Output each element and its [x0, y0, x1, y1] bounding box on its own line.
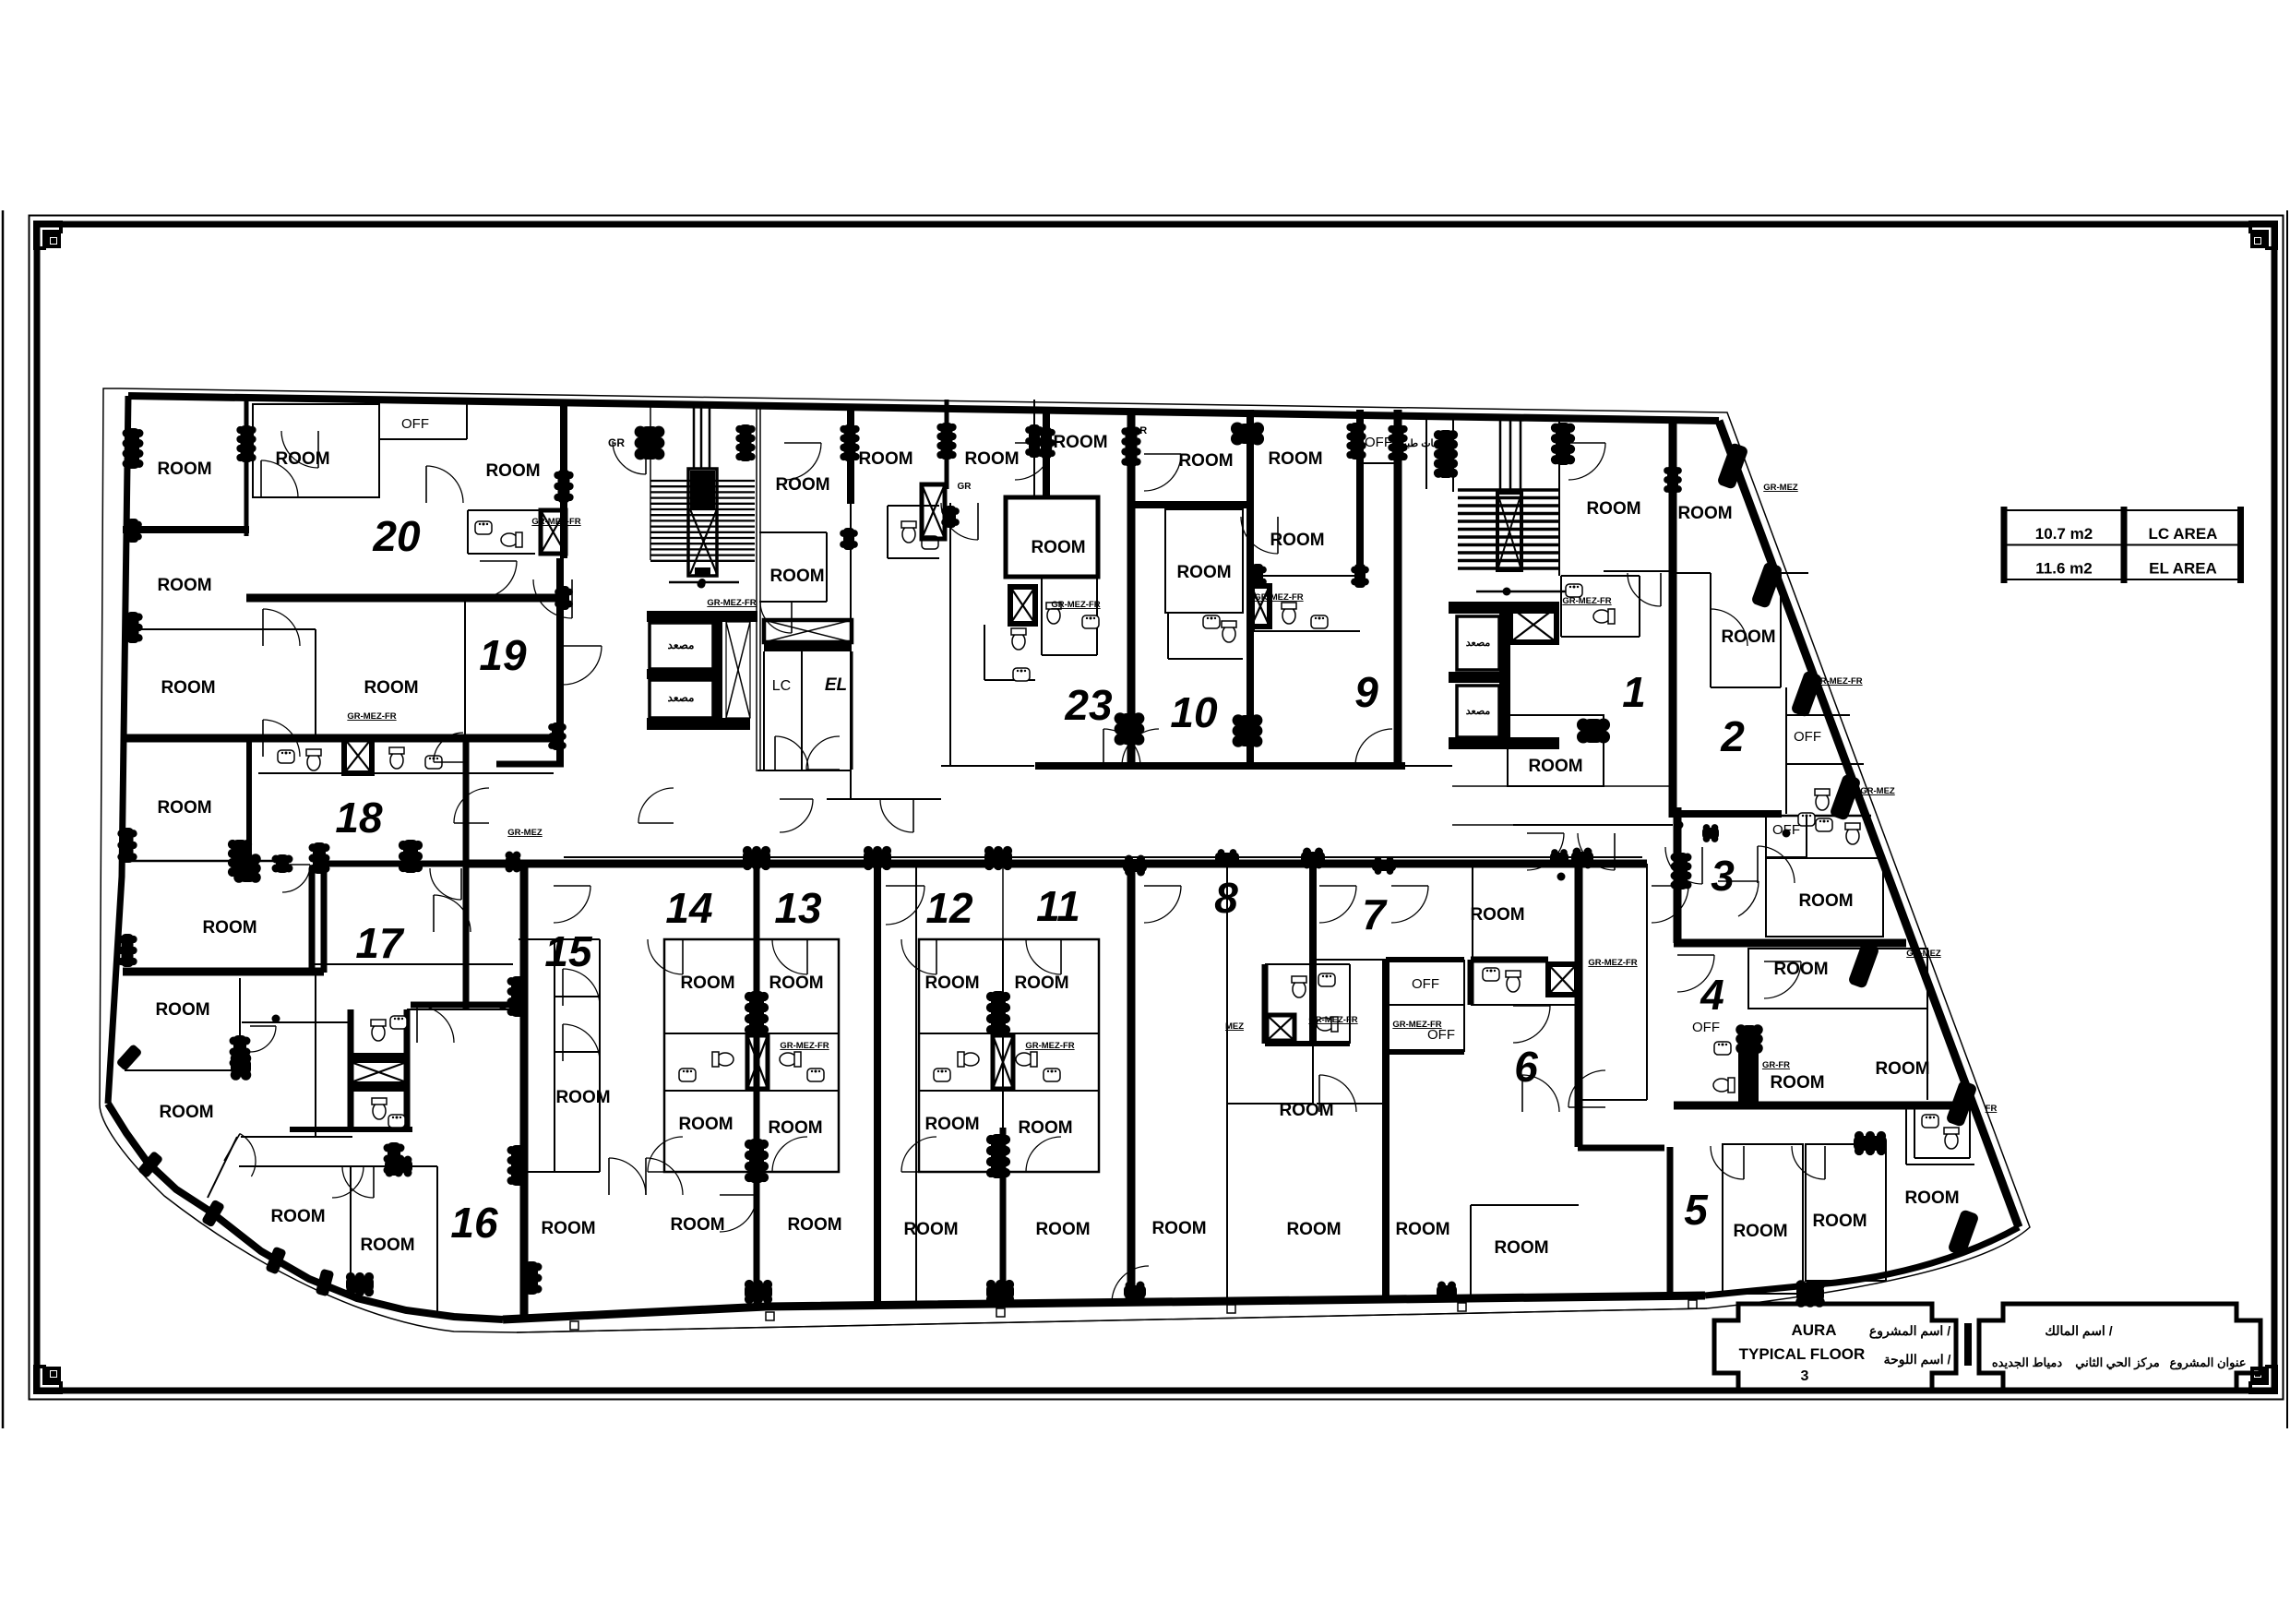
svg-text:GR-MEZ-FR: GR-MEZ-FR — [780, 1041, 829, 1051]
svg-text:ROOM: ROOM — [1875, 1059, 1929, 1079]
svg-text:15: 15 — [544, 927, 593, 975]
svg-text:ROOM: ROOM — [157, 576, 211, 595]
svg-text:ROOM: ROOM — [924, 1115, 979, 1134]
svg-text:اسم المشروع /: اسم المشروع / — [1869, 1323, 1950, 1339]
svg-text:8: 8 — [1214, 874, 1238, 922]
svg-text:19: 19 — [479, 631, 527, 679]
svg-text:GR-MEZ-FR: GR-MEZ-FR — [1588, 958, 1637, 968]
svg-text:ROOM: ROOM — [924, 973, 979, 993]
svg-text:17: 17 — [355, 919, 405, 967]
svg-text:ROOM: ROOM — [768, 1118, 822, 1138]
svg-text:مصعد: مصعد — [1466, 638, 1491, 649]
svg-text:GR-MEZ: GR-MEZ — [1860, 786, 1895, 796]
svg-text:ROOM: ROOM — [202, 918, 256, 937]
svg-text:GR-MEZ: GR-MEZ — [507, 828, 543, 838]
svg-text:ROOM: ROOM — [1151, 1219, 1206, 1238]
svg-text:ROOM: ROOM — [670, 1215, 724, 1235]
svg-text:ROOM: ROOM — [680, 973, 734, 993]
svg-text:12: 12 — [925, 884, 973, 932]
svg-text:ROOM: ROOM — [1035, 1220, 1090, 1239]
svg-text:ROOM: ROOM — [270, 1207, 325, 1226]
svg-text:OFF: OFF — [1692, 1020, 1720, 1035]
svg-text:ROOM: ROOM — [775, 475, 829, 495]
svg-text:7: 7 — [1362, 890, 1388, 938]
svg-text:ROOM: ROOM — [1586, 499, 1640, 519]
svg-text:GR-MEZ-FR: GR-MEZ-FR — [347, 711, 396, 722]
svg-text:اسم اللوحة /: اسم اللوحة / — [1884, 1352, 1951, 1367]
svg-text:18: 18 — [335, 794, 383, 842]
svg-text:16: 16 — [450, 1199, 498, 1247]
svg-text:GR-MEZ: GR-MEZ — [1906, 949, 1941, 959]
svg-text:10.7 m2: 10.7 m2 — [2035, 525, 2093, 543]
svg-text:ROOM: ROOM — [155, 1000, 209, 1020]
svg-text:EL: EL — [825, 675, 847, 695]
svg-text:GR-MEZ-FR: GR-MEZ-FR — [1562, 596, 1611, 606]
svg-text:GR-MEZ: GR-MEZ — [1763, 483, 1798, 493]
svg-text:GR-MEZ-FR: GR-MEZ-FR — [1254, 592, 1303, 603]
svg-text:5: 5 — [1684, 1186, 1709, 1234]
svg-text:دمياط الجديده: دمياط الجديده — [1992, 1355, 2063, 1369]
svg-text:ROOM: ROOM — [1270, 531, 1324, 550]
svg-text:OFF: OFF — [1772, 822, 1800, 838]
svg-text:ROOM: ROOM — [360, 1236, 414, 1255]
svg-text:ROOM: ROOM — [1733, 1222, 1787, 1241]
svg-text:GR-MEZ-FR: GR-MEZ-FR — [707, 598, 756, 608]
svg-text:GR-MEZ-FR: GR-MEZ-FR — [1308, 1015, 1357, 1025]
svg-text:مصعد: مصعد — [668, 691, 695, 704]
svg-text:ROOM: ROOM — [1470, 905, 1524, 925]
svg-text:ROOM: ROOM — [1494, 1238, 1548, 1258]
svg-text:FR: FR — [1986, 1104, 1998, 1114]
svg-text:1: 1 — [1622, 668, 1646, 716]
svg-text:ROOM: ROOM — [541, 1219, 595, 1238]
svg-text:GR-MEZ-FR: GR-MEZ-FR — [1051, 600, 1100, 610]
svg-text:ROOM: ROOM — [1798, 891, 1853, 911]
svg-text:EL AREA: EL AREA — [2149, 560, 2217, 578]
svg-text:ROOM: ROOM — [1014, 973, 1068, 993]
svg-text:ROOM: ROOM — [157, 460, 211, 479]
svg-text:GR-FR: GR-FR — [1762, 1060, 1790, 1070]
svg-text:GR-MEZ-FR: GR-MEZ-FR — [1392, 1020, 1441, 1030]
svg-text:23: 23 — [1064, 681, 1113, 729]
svg-text:مصعد: مصعد — [668, 639, 695, 651]
svg-text:ROOM: ROOM — [1721, 627, 1775, 647]
svg-text:3: 3 — [1801, 1368, 1809, 1384]
svg-text:AURA: AURA — [1791, 1321, 1836, 1339]
svg-text:ROOM: ROOM — [1018, 1118, 1072, 1138]
svg-text:مركز الحي الثاني: مركز الحي الثاني — [2075, 1355, 2159, 1370]
svg-text:ROOM: ROOM — [1031, 538, 1085, 557]
svg-text:مخلفات طبية: مخلفات طبية — [1399, 438, 1454, 449]
svg-text:GR-MEZ-FR: GR-MEZ-FR — [1025, 1041, 1074, 1051]
svg-text:ROOM: ROOM — [1268, 449, 1322, 469]
svg-text:ROOM: ROOM — [769, 567, 824, 586]
svg-text:ROOM: ROOM — [769, 973, 823, 993]
svg-text:ROOM: ROOM — [159, 1103, 213, 1122]
svg-text:TYPICAL FLOOR: TYPICAL FLOOR — [1739, 1345, 1866, 1363]
svg-text:عنوان المشروع: عنوان المشروع — [2169, 1355, 2246, 1370]
svg-text:ROOM: ROOM — [1279, 1101, 1333, 1120]
svg-text:14: 14 — [665, 884, 712, 932]
svg-text:GR: GR — [1132, 425, 1148, 436]
svg-text:ROOM: ROOM — [1677, 504, 1732, 523]
svg-text:20: 20 — [372, 512, 421, 560]
svg-text:ROOM: ROOM — [485, 461, 540, 481]
svg-text:ROOM: ROOM — [1904, 1188, 1959, 1208]
svg-text:ROOM: ROOM — [1528, 757, 1582, 776]
svg-text:مصعد: مصعد — [1466, 706, 1491, 717]
svg-text:3: 3 — [1711, 852, 1735, 900]
svg-text:ROOM: ROOM — [275, 449, 329, 469]
svg-text:ROOM: ROOM — [1178, 451, 1233, 471]
svg-text:4: 4 — [1700, 971, 1724, 1019]
svg-text:GR: GR — [608, 436, 625, 449]
svg-text:2: 2 — [1720, 712, 1745, 760]
svg-text:ROOM: ROOM — [858, 449, 912, 469]
svg-text:LC AREA: LC AREA — [2149, 525, 2218, 543]
svg-text:OFF: OFF — [1365, 435, 1392, 450]
svg-text:ROOM: ROOM — [157, 798, 211, 818]
svg-text:ROOM: ROOM — [1812, 1212, 1867, 1231]
svg-text:OFF: OFF — [401, 416, 429, 432]
svg-text:GR-MEZ-FR: GR-MEZ-FR — [531, 517, 580, 527]
svg-text:ROOM: ROOM — [1286, 1220, 1341, 1239]
svg-text:ROOM: ROOM — [1395, 1220, 1449, 1239]
svg-text:ROOM: ROOM — [364, 678, 418, 698]
svg-text:اسم المالك /: اسم المالك / — [2045, 1323, 2112, 1339]
svg-text:MEZ: MEZ — [1225, 1021, 1244, 1032]
svg-text:ROOM: ROOM — [1770, 1073, 1824, 1093]
svg-text:ROOM: ROOM — [903, 1220, 958, 1239]
svg-text:11.6 m2: 11.6 m2 — [2035, 560, 2092, 578]
svg-text:GR: GR — [958, 482, 972, 492]
svg-text:10: 10 — [1170, 688, 1218, 736]
svg-text:GR-MEZ-FR: GR-MEZ-FR — [1813, 676, 1862, 687]
svg-text:LC: LC — [772, 678, 791, 694]
svg-text:ROOM: ROOM — [678, 1115, 733, 1134]
svg-text:ROOM: ROOM — [1053, 433, 1107, 452]
svg-text:ROOM: ROOM — [555, 1088, 610, 1107]
svg-text:ROOM: ROOM — [787, 1215, 841, 1235]
svg-text:OFF: OFF — [1794, 729, 1821, 745]
svg-text:ROOM: ROOM — [964, 449, 1019, 469]
svg-text:13: 13 — [774, 884, 822, 932]
svg-text:ROOM: ROOM — [1176, 563, 1231, 582]
svg-text:6: 6 — [1514, 1043, 1538, 1091]
svg-text:11: 11 — [1036, 882, 1080, 930]
svg-text:ROOM: ROOM — [161, 678, 215, 698]
svg-text:9: 9 — [1354, 668, 1378, 716]
svg-text:OFF: OFF — [1412, 976, 1439, 992]
svg-text:ROOM: ROOM — [1773, 960, 1828, 979]
